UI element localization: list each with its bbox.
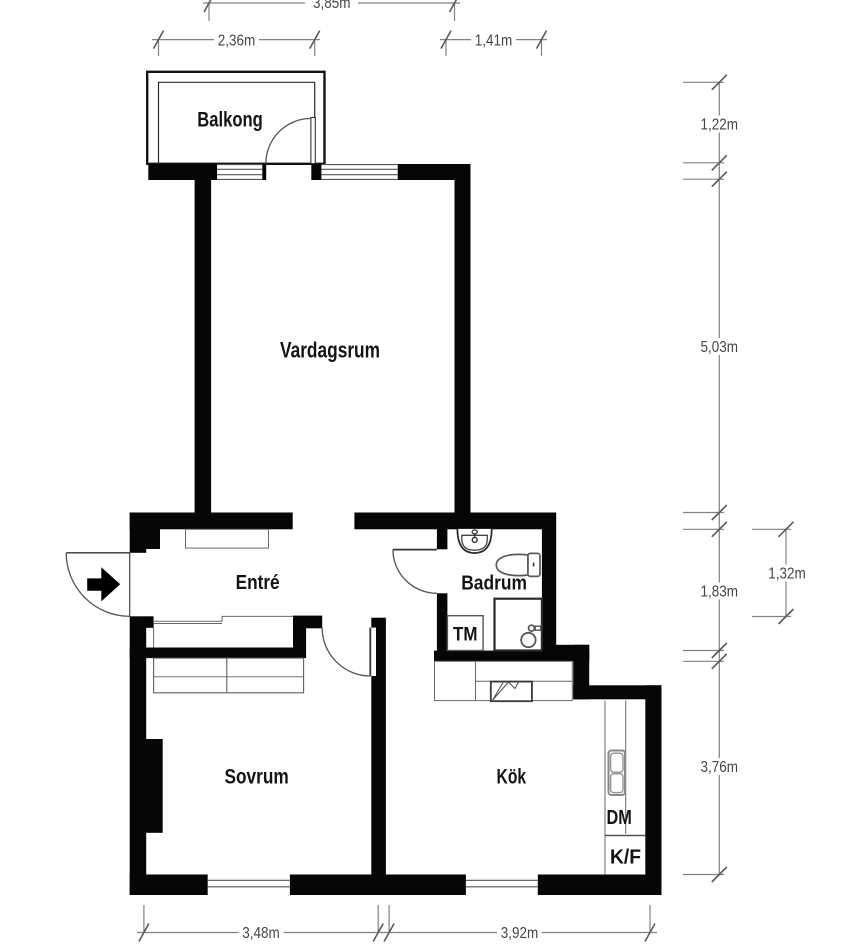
svg-text:Balkong: Balkong [197,107,263,131]
svg-text:1,41m: 1,41m [475,33,513,50]
svg-text:3,85m: 3,85m [313,0,351,12]
svg-text:1,22m: 1,22m [701,117,739,134]
svg-text:K/F: K/F [610,847,641,869]
svg-text:Entré: Entré [236,572,280,594]
svg-text:Badrum: Badrum [461,572,527,594]
svg-text:TM: TM [453,625,478,646]
svg-text:1,32m: 1,32m [768,566,806,583]
svg-text:2,36m: 2,36m [218,33,256,50]
svg-text:3,76m: 3,76m [701,759,739,776]
svg-text:DM: DM [607,807,632,829]
svg-text:Kök: Kök [497,765,527,788]
svg-text:1,83m: 1,83m [701,584,739,601]
svg-text:3,48m: 3,48m [242,925,280,942]
svg-text:3,92m: 3,92m [501,925,539,942]
svg-text:Vardagsrum: Vardagsrum [280,337,380,362]
svg-text:Sovrum: Sovrum [224,766,288,789]
svg-text:5,03m: 5,03m [701,339,739,356]
